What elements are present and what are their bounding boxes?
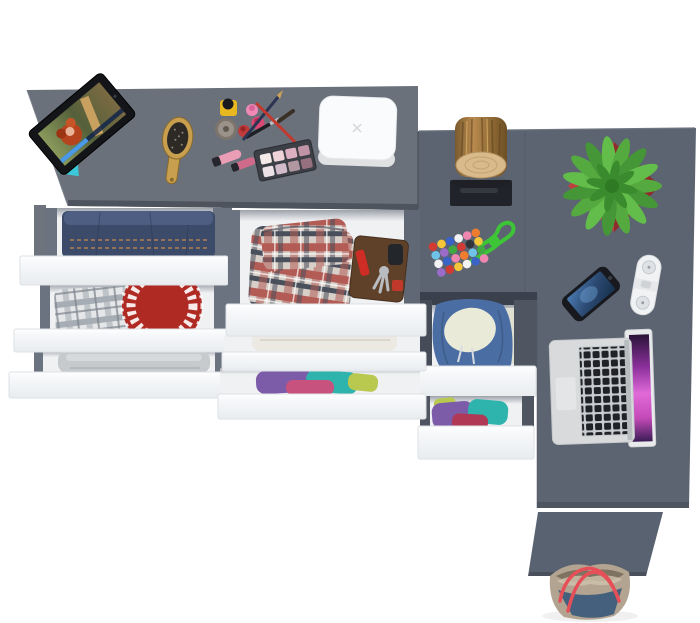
folded-jeans (62, 211, 215, 258)
drawer-front[interactable] (418, 426, 534, 459)
desk-front-edge-right (537, 502, 689, 508)
plaid-shorts (248, 218, 354, 313)
laptop-trackpad (555, 377, 576, 411)
car-key-fob (388, 244, 403, 265)
red-keychain (392, 280, 403, 291)
drawer-front[interactable] (20, 256, 228, 285)
laptop-keyboard (579, 346, 631, 436)
drawer-front[interactable] (218, 394, 426, 419)
laptop (549, 329, 656, 450)
drawer-column-middle (218, 210, 426, 419)
gray-towel (58, 351, 210, 373)
drawer-front[interactable] (416, 366, 536, 397)
drawer-front[interactable] (226, 304, 426, 336)
left-dresser-unit (9, 72, 426, 419)
wallet-with-keys (349, 235, 409, 302)
drawer-front[interactable] (14, 329, 230, 352)
drawer-front[interactable] (9, 372, 232, 398)
cabinet-drawers (416, 292, 537, 459)
blue-hoodie (433, 299, 514, 370)
drawer-front[interactable] (222, 352, 426, 371)
white-box (318, 96, 397, 168)
tote-bag (542, 564, 638, 622)
stump-cut-face (456, 152, 506, 178)
product-photo-stage (0, 0, 700, 623)
drawer-wall (514, 300, 537, 368)
